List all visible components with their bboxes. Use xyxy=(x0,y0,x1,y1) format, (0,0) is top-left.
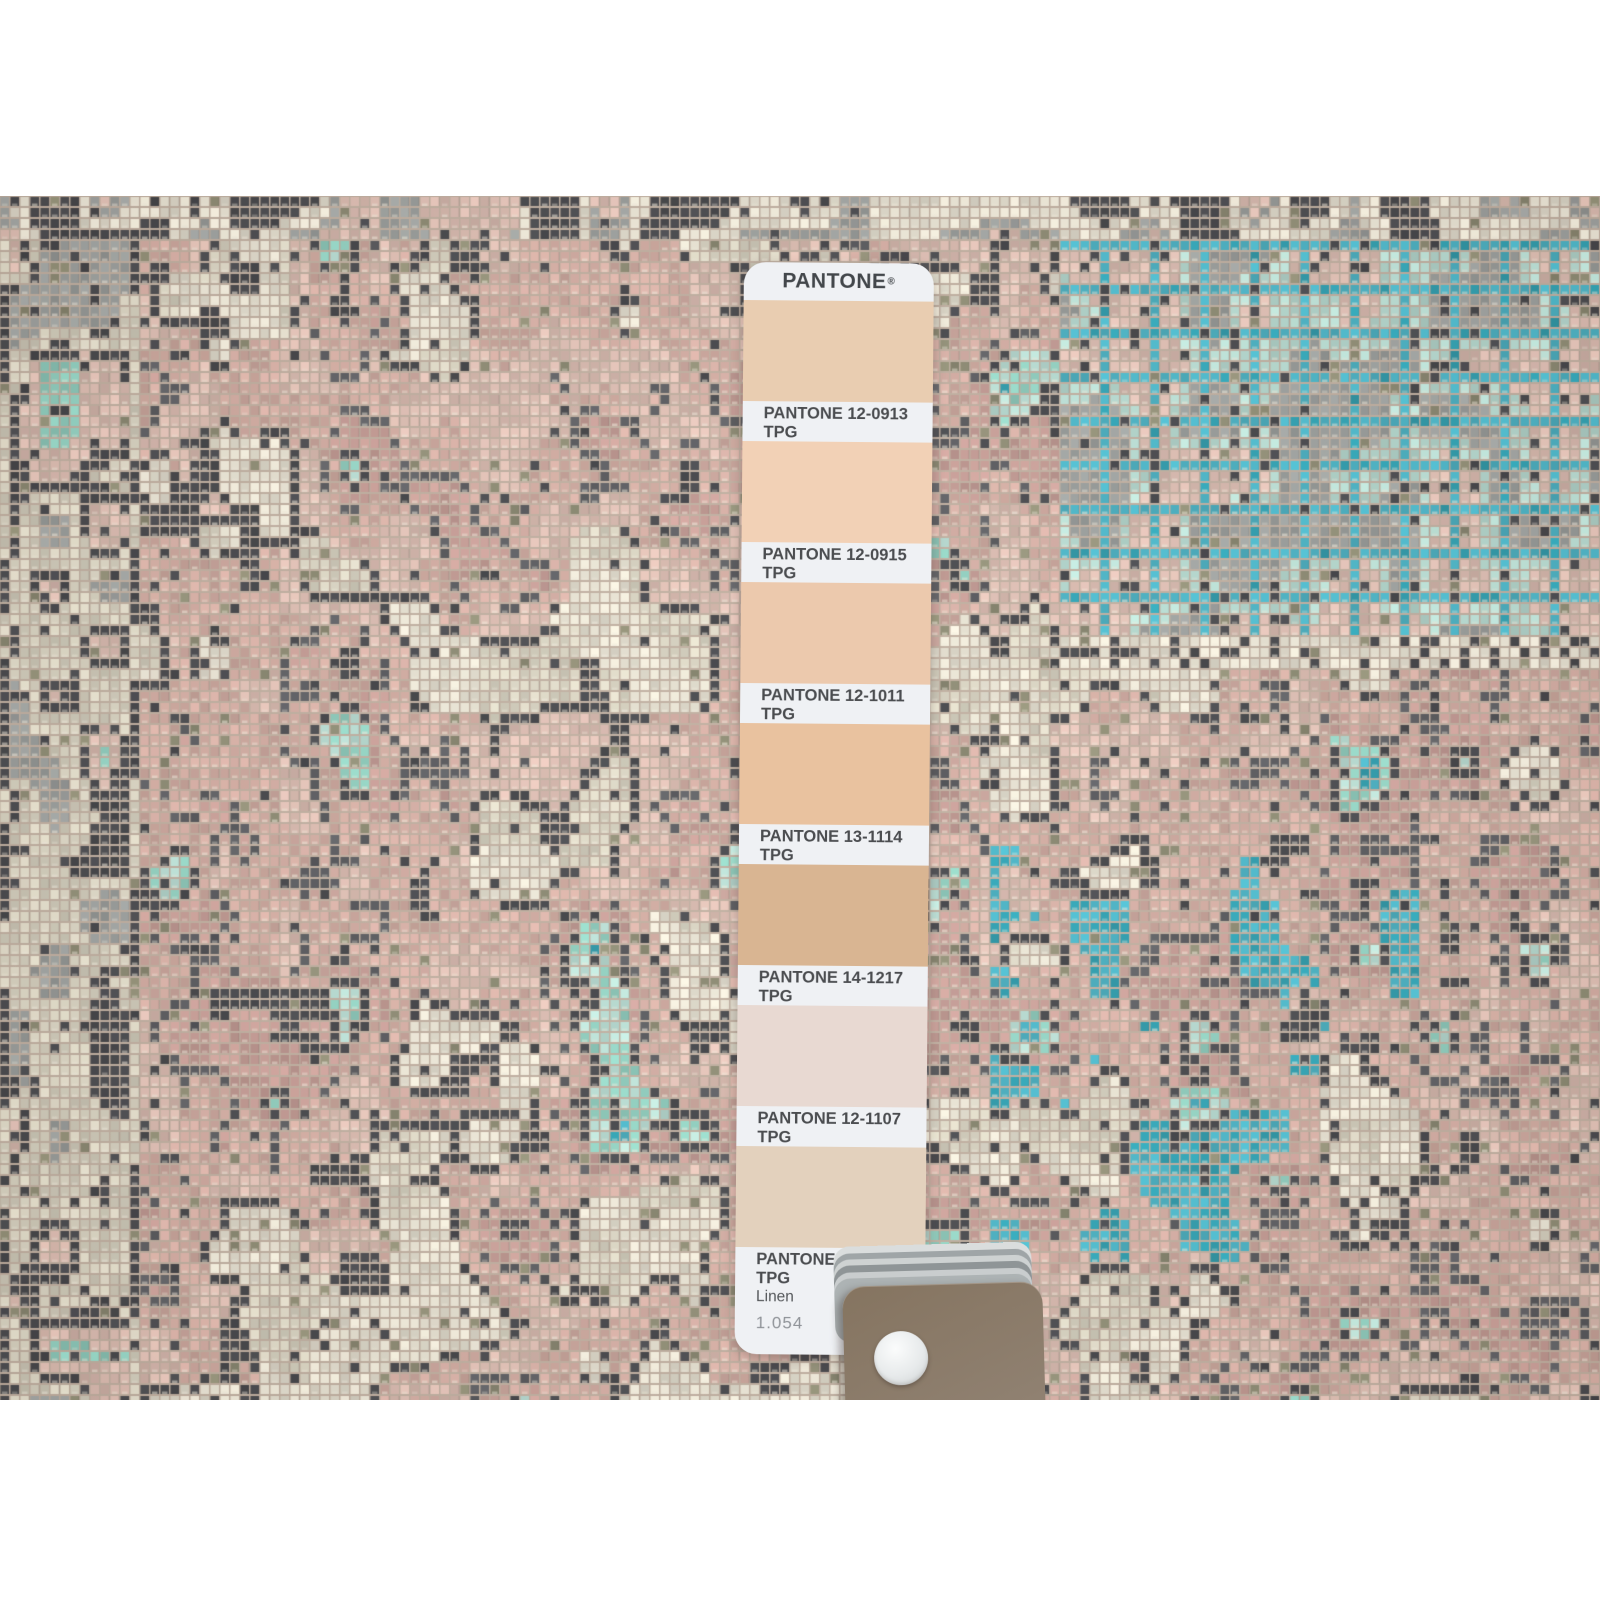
swatch-label: PANTONE 12-0913 TPG Alesan xyxy=(742,401,932,443)
rug-photo: PANTONE® PANTONE 12-0913 TPG Alesan PANT… xyxy=(0,196,1600,1400)
rivet-fastener xyxy=(873,1330,928,1385)
pantone-guide-stack xyxy=(833,1241,1049,1400)
swatch-label: PANTONE 12-0915 TPG Pale Peach xyxy=(741,542,931,584)
swatch-code: PANTONE 12-0915 TPG xyxy=(762,545,931,584)
color-chip-peach-puree xyxy=(740,582,931,685)
swatch-code: PANTONE 12-0913 TPG xyxy=(763,404,932,443)
swatch-code: PANTONE 12-1107 TPG xyxy=(757,1109,926,1148)
pantone-strip-header: PANTONE® xyxy=(744,262,934,302)
pantone-brand-wordmark: PANTONE xyxy=(782,269,886,294)
guide-cover-card xyxy=(842,1281,1049,1400)
swatch-code: PANTONE 12-1011 TPG xyxy=(761,686,930,725)
pantone-strip: PANTONE® PANTONE 12-0913 TPG Alesan PANT… xyxy=(734,262,934,1356)
swatch-code: PANTONE 13-1114 TPG xyxy=(760,827,929,866)
strip-page-number: 1.054 xyxy=(756,1313,804,1333)
swatch-label: PANTONE 14-1217 TPG Amberlight xyxy=(738,965,928,1007)
registered-trademark-symbol: ® xyxy=(887,277,895,287)
page: PANTONE® PANTONE 12-0913 TPG Alesan PANT… xyxy=(0,0,1600,1600)
color-chip-peach-dust xyxy=(737,1005,928,1108)
swatch-label: PANTONE 12-1011 TPG Peach Purée xyxy=(740,683,930,725)
color-chip-alesan xyxy=(743,300,934,403)
swatch-code: PANTONE 14-1217 TPG xyxy=(759,968,928,1007)
color-chip-linen xyxy=(735,1146,926,1249)
swatch-label: PANTONE 12-1107 TPG Peach Dust xyxy=(736,1106,926,1148)
color-chip-amberlight xyxy=(738,864,929,967)
color-chip-pale-peach xyxy=(742,441,933,544)
swatch-label: PANTONE 13-1114 TPG Bellini xyxy=(739,824,929,866)
color-chip-bellini xyxy=(739,723,930,826)
